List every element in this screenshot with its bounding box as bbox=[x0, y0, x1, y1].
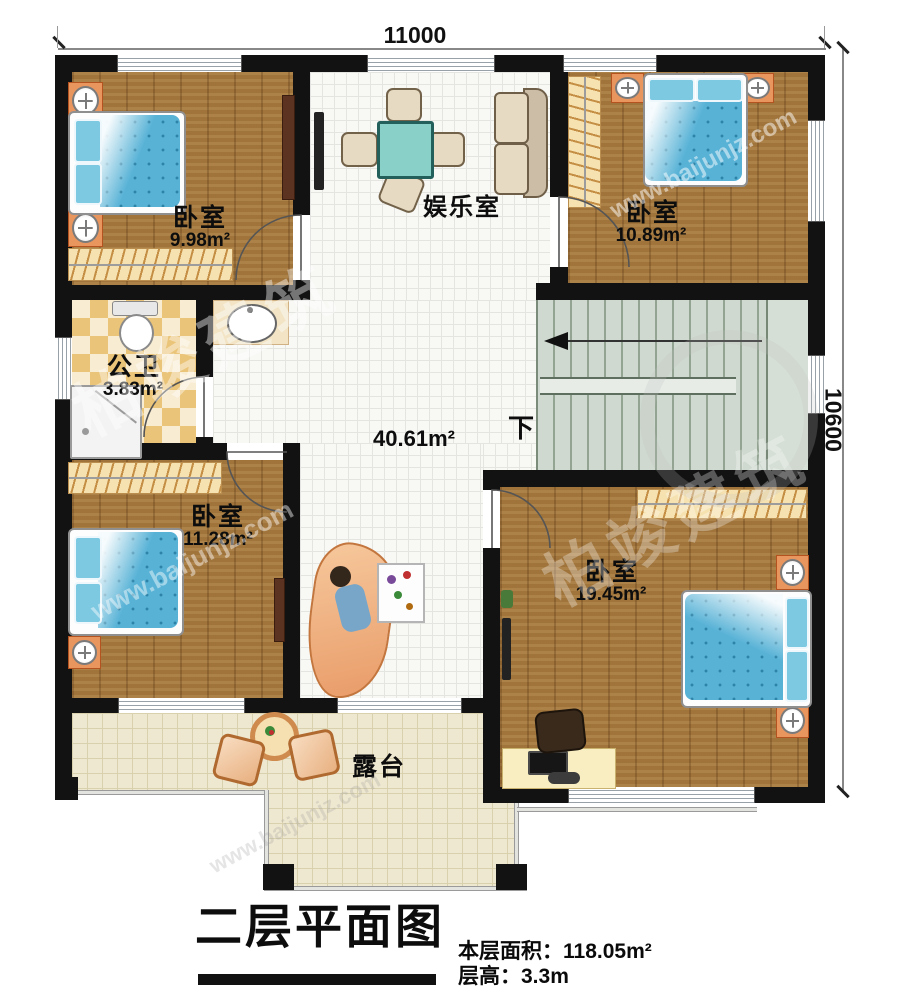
title-underline bbox=[198, 974, 436, 985]
room-area-bedroom-bl: 11.28m² bbox=[183, 530, 253, 549]
dimension-width-label: 11000 bbox=[384, 22, 447, 49]
room-label-bedroom-tl: 卧室 bbox=[173, 206, 227, 231]
plan-title: 二层平面图 bbox=[195, 903, 445, 950]
dimension-ext-line bbox=[824, 26, 825, 48]
floor-height-label: 层高： bbox=[458, 965, 521, 988]
room-label-bedroom-br: 卧室 bbox=[585, 560, 639, 585]
room-label-bedroom-bl: 卧室 bbox=[191, 505, 245, 530]
door-arc-bedroom-br bbox=[492, 490, 550, 548]
room-area-entertainment: 40.61m² bbox=[373, 428, 455, 450]
room-label-entertainment: 娱乐室 bbox=[423, 196, 501, 220]
dimension-height-label: 10600 bbox=[820, 388, 847, 452]
door-arc-bedroom-tl bbox=[236, 215, 301, 280]
room-area-bedroom-tr: 10.89m² bbox=[616, 226, 687, 245]
room-label-bedroom-tr: 卧室 bbox=[626, 201, 680, 226]
room-label-bathroom: 公卫 bbox=[107, 355, 161, 380]
watermark-logo-ring bbox=[640, 330, 818, 508]
stair-arrow-icon bbox=[544, 332, 568, 350]
room-area-bedroom-br: 19.45m² bbox=[576, 585, 647, 604]
floor-area-value: 118.05m² bbox=[563, 940, 652, 963]
room-label-terrace: 露台 bbox=[352, 755, 406, 780]
floor-plan: 11000 10600 卧室 9.98m² 娱乐室 40.61m² 卧室 10.… bbox=[0, 0, 907, 992]
room-area-bathroom: 3.83m² bbox=[103, 380, 163, 399]
dimension-ext-line bbox=[57, 26, 58, 48]
room-area-bedroom-tl: 9.98m² bbox=[170, 231, 230, 250]
stair-down-label: 下 bbox=[508, 415, 534, 441]
floor-height-value: 3.3m bbox=[521, 965, 569, 988]
